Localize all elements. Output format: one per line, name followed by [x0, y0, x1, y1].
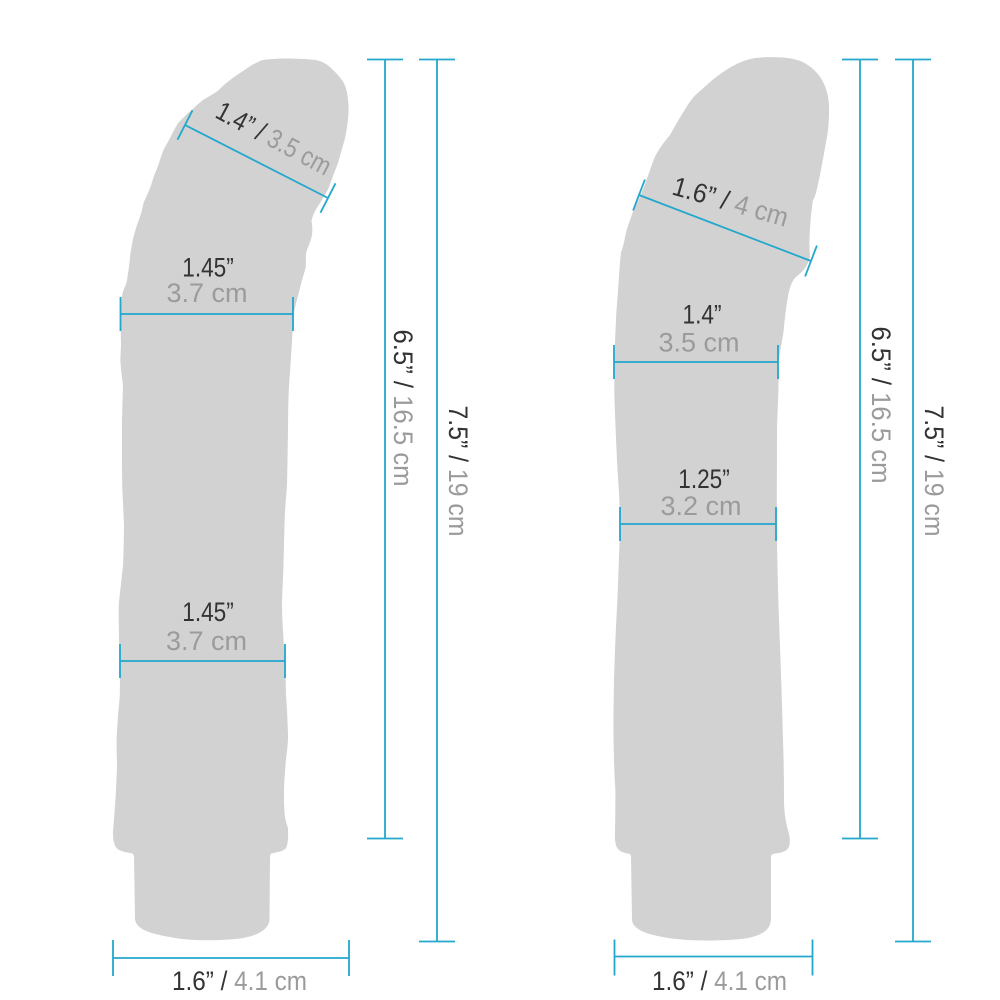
svg-text:3.2 cm: 3.2 cm — [660, 491, 741, 521]
svg-text:3.5 cm: 3.5 cm — [658, 328, 739, 358]
svg-text:1.6” / 4.1 cm: 1.6” / 4.1 cm — [652, 966, 787, 996]
svg-text:1.4”: 1.4” — [683, 300, 722, 330]
svg-text:6.5” / 16.5 cm: 6.5” / 16.5 cm — [866, 327, 896, 484]
svg-text:6.5” / 16.5 cm: 6.5” / 16.5 cm — [388, 330, 418, 487]
svg-text:7.5” / 19 cm: 7.5” / 19 cm — [919, 406, 949, 537]
svg-text:3.7 cm: 3.7 cm — [166, 626, 247, 656]
svg-text:1.45”: 1.45” — [182, 597, 234, 627]
svg-text:3.7 cm: 3.7 cm — [166, 278, 247, 308]
svg-text:7.5” / 19 cm: 7.5” / 19 cm — [443, 406, 473, 537]
svg-text:1.6” / 4.1 cm: 1.6” / 4.1 cm — [172, 966, 307, 996]
svg-text:1.25”: 1.25” — [678, 464, 730, 494]
